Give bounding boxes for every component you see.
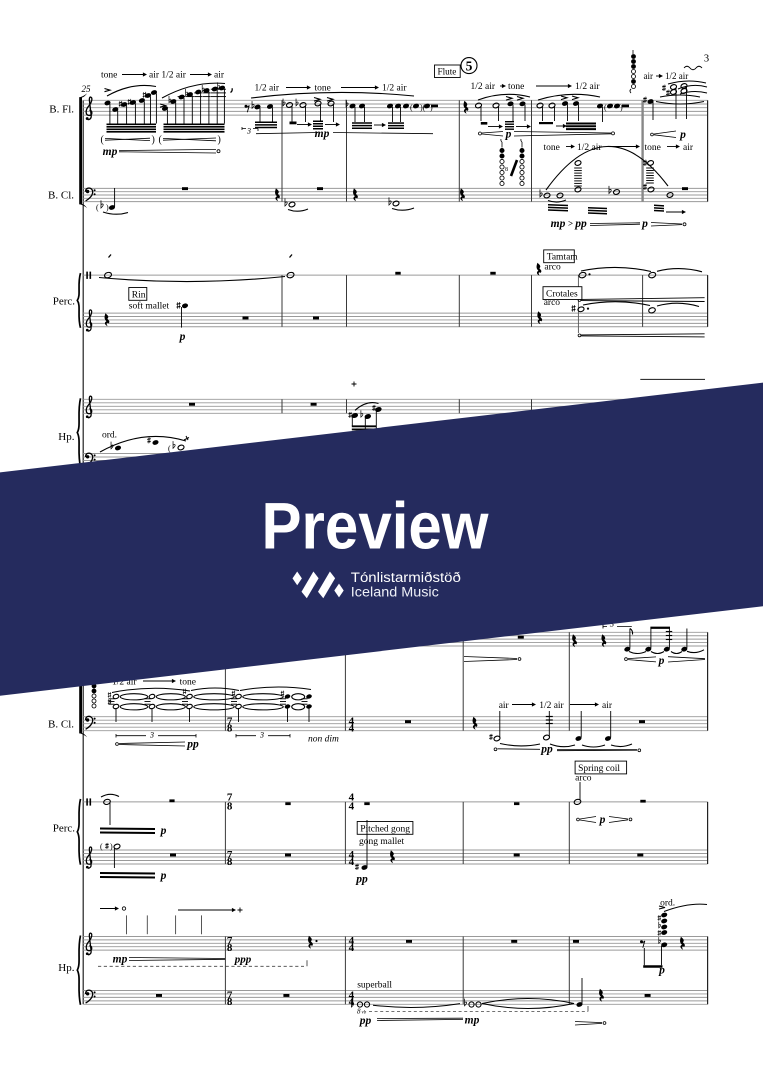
svg-text:gong mallet: gong mallet [359,837,404,847]
svg-text:air: air [499,701,510,711]
svg-text:tone: tone [101,71,117,81]
svg-text:arco: arco [544,298,561,308]
svg-text:(: ( [96,203,99,212]
svg-text:air 1/2 air: air 1/2 air [149,71,187,81]
svg-text:): ) [218,135,221,146]
svg-text:Perc.: Perc. [53,823,76,835]
svg-text:(: ( [410,103,413,112]
svg-text:Tamtam: Tamtam [547,253,579,263]
svg-text:1/2 air: 1/2 air [575,82,600,92]
svg-text:Iceland Music: Iceland Music [351,585,439,600]
svg-text:8: 8 [227,856,233,868]
svg-text:p: p [160,870,167,882]
svg-text:tone: tone [645,143,661,153]
svg-text:p: p [679,129,686,141]
svg-text:pp: pp [540,744,553,756]
svg-text:pp: pp [186,739,199,751]
svg-text:3: 3 [246,127,251,136]
svg-text:8: 8 [227,801,233,813]
svg-text:3: 3 [704,54,709,65]
svg-text:Rin: Rin [132,290,146,300]
svg-text:Spring coil: Spring coil [578,764,620,774]
svg-text:tone: tone [180,678,196,688]
svg-text:4: 4 [349,801,355,813]
svg-text:Tónlistarmiðstöð: Tónlistarmiðstöð [351,570,461,585]
svg-text:1/2 air: 1/2 air [382,84,407,94]
svg-text:mp: mp [465,1015,480,1027]
svg-text:B. Cl.: B. Cl. [48,719,74,731]
svg-text:B. Fl.: B. Fl. [49,103,74,115]
svg-text:p: p [160,825,167,837]
svg-text:Flute: Flute [438,67,457,77]
svg-text:p: p [658,655,665,667]
svg-text:arco: arco [575,774,592,784]
svg-text:pp: pp [574,218,587,230]
svg-text:tone: tone [544,143,560,153]
svg-text:4: 4 [349,942,355,954]
svg-text:soft mallet: soft mallet [129,300,170,311]
svg-text:5: 5 [466,59,473,74]
svg-text:>: > [568,219,573,229]
svg-text:1/2 air: 1/2 air [665,71,688,81]
svg-text:tone: tone [508,82,524,92]
svg-text:p: p [505,129,512,141]
svg-text:): ) [106,203,109,212]
svg-text:Perc.: Perc. [53,296,76,308]
svg-text:tone: tone [315,84,331,94]
svg-text:3: 3 [149,731,154,740]
svg-text:1/2 air: 1/2 air [255,84,280,94]
svg-text:ord.: ord. [102,431,117,441]
svg-text:8: 8 [505,167,508,173]
svg-text:): ) [110,842,113,851]
svg-text:p: p [599,814,606,826]
svg-text:mp: mp [551,218,566,230]
svg-text:3: 3 [259,731,264,740]
svg-text:8: 8 [227,723,233,735]
svg-text:Hp.: Hp. [58,962,74,974]
svg-text:4: 4 [349,723,355,735]
svg-text:non dim: non dim [308,735,339,745]
svg-text:B. Cl.: B. Cl. [48,190,74,202]
svg-text:Preview: Preview [262,489,490,563]
svg-text:): ) [620,103,623,112]
svg-text:25: 25 [82,84,92,94]
svg-text:ppp: ppp [234,954,252,966]
svg-text:mp: mp [315,128,330,140]
svg-text:superball: superball [357,980,392,990]
svg-text:1/2 air: 1/2 air [471,82,496,92]
svg-text:): ) [152,135,155,146]
svg-text:pp: pp [355,874,368,886]
svg-text:8: 8 [227,942,233,954]
svg-text:(: ( [604,103,607,112]
svg-text:Pitched gong: Pitched gong [360,824,410,834]
svg-text:air: air [644,71,654,81]
svg-text:8: 8 [227,996,233,1008]
svg-text:air: air [683,143,694,153]
svg-text:p: p [641,218,648,230]
svg-text:air: air [602,701,613,711]
svg-text:pp: pp [359,1015,372,1027]
svg-text:Hp.: Hp. [58,431,74,443]
svg-text:(: ( [168,444,171,453]
svg-text:mp: mp [103,146,118,158]
svg-text:): ) [430,103,433,112]
svg-text:arco: arco [544,262,561,272]
svg-text:(: ( [100,842,103,851]
svg-text:mp: mp [113,954,128,966]
svg-text:p: p [179,331,186,343]
svg-text:p: p [658,965,665,977]
svg-text:4: 4 [349,856,355,868]
svg-text:1/2 air: 1/2 air [539,701,564,711]
svg-text:air: air [214,71,225,81]
